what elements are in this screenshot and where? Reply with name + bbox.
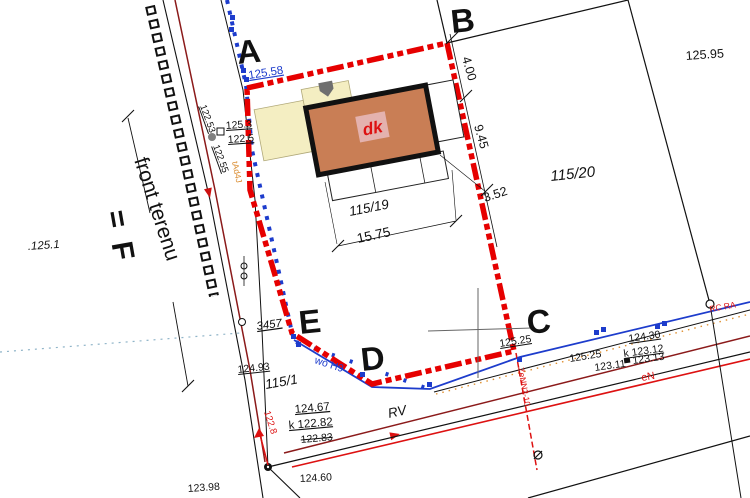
elevation-122-5: 122.5 bbox=[227, 132, 254, 146]
survey-point-dot-center bbox=[267, 466, 269, 468]
gray-point bbox=[208, 133, 216, 141]
survey-point-circle bbox=[239, 319, 246, 326]
elevation-124-60: 124.60 bbox=[300, 471, 333, 485]
elevation-125-1: .125.1 bbox=[27, 239, 60, 253]
plan-svg: dk bbox=[0, 0, 750, 498]
elevation-125-95: 125.95 bbox=[685, 46, 724, 63]
corner-label-e: E bbox=[297, 302, 323, 341]
corner-label-b: B bbox=[449, 1, 477, 40]
elevation-123-98: 123.98 bbox=[187, 481, 220, 495]
en-label: eN bbox=[640, 370, 655, 384]
elevation-125-3: 125.3 bbox=[225, 118, 252, 132]
corner-label-a: A bbox=[235, 32, 263, 71]
corner-label-d: D bbox=[359, 339, 387, 378]
cadastral-plan: dk bbox=[0, 0, 750, 498]
